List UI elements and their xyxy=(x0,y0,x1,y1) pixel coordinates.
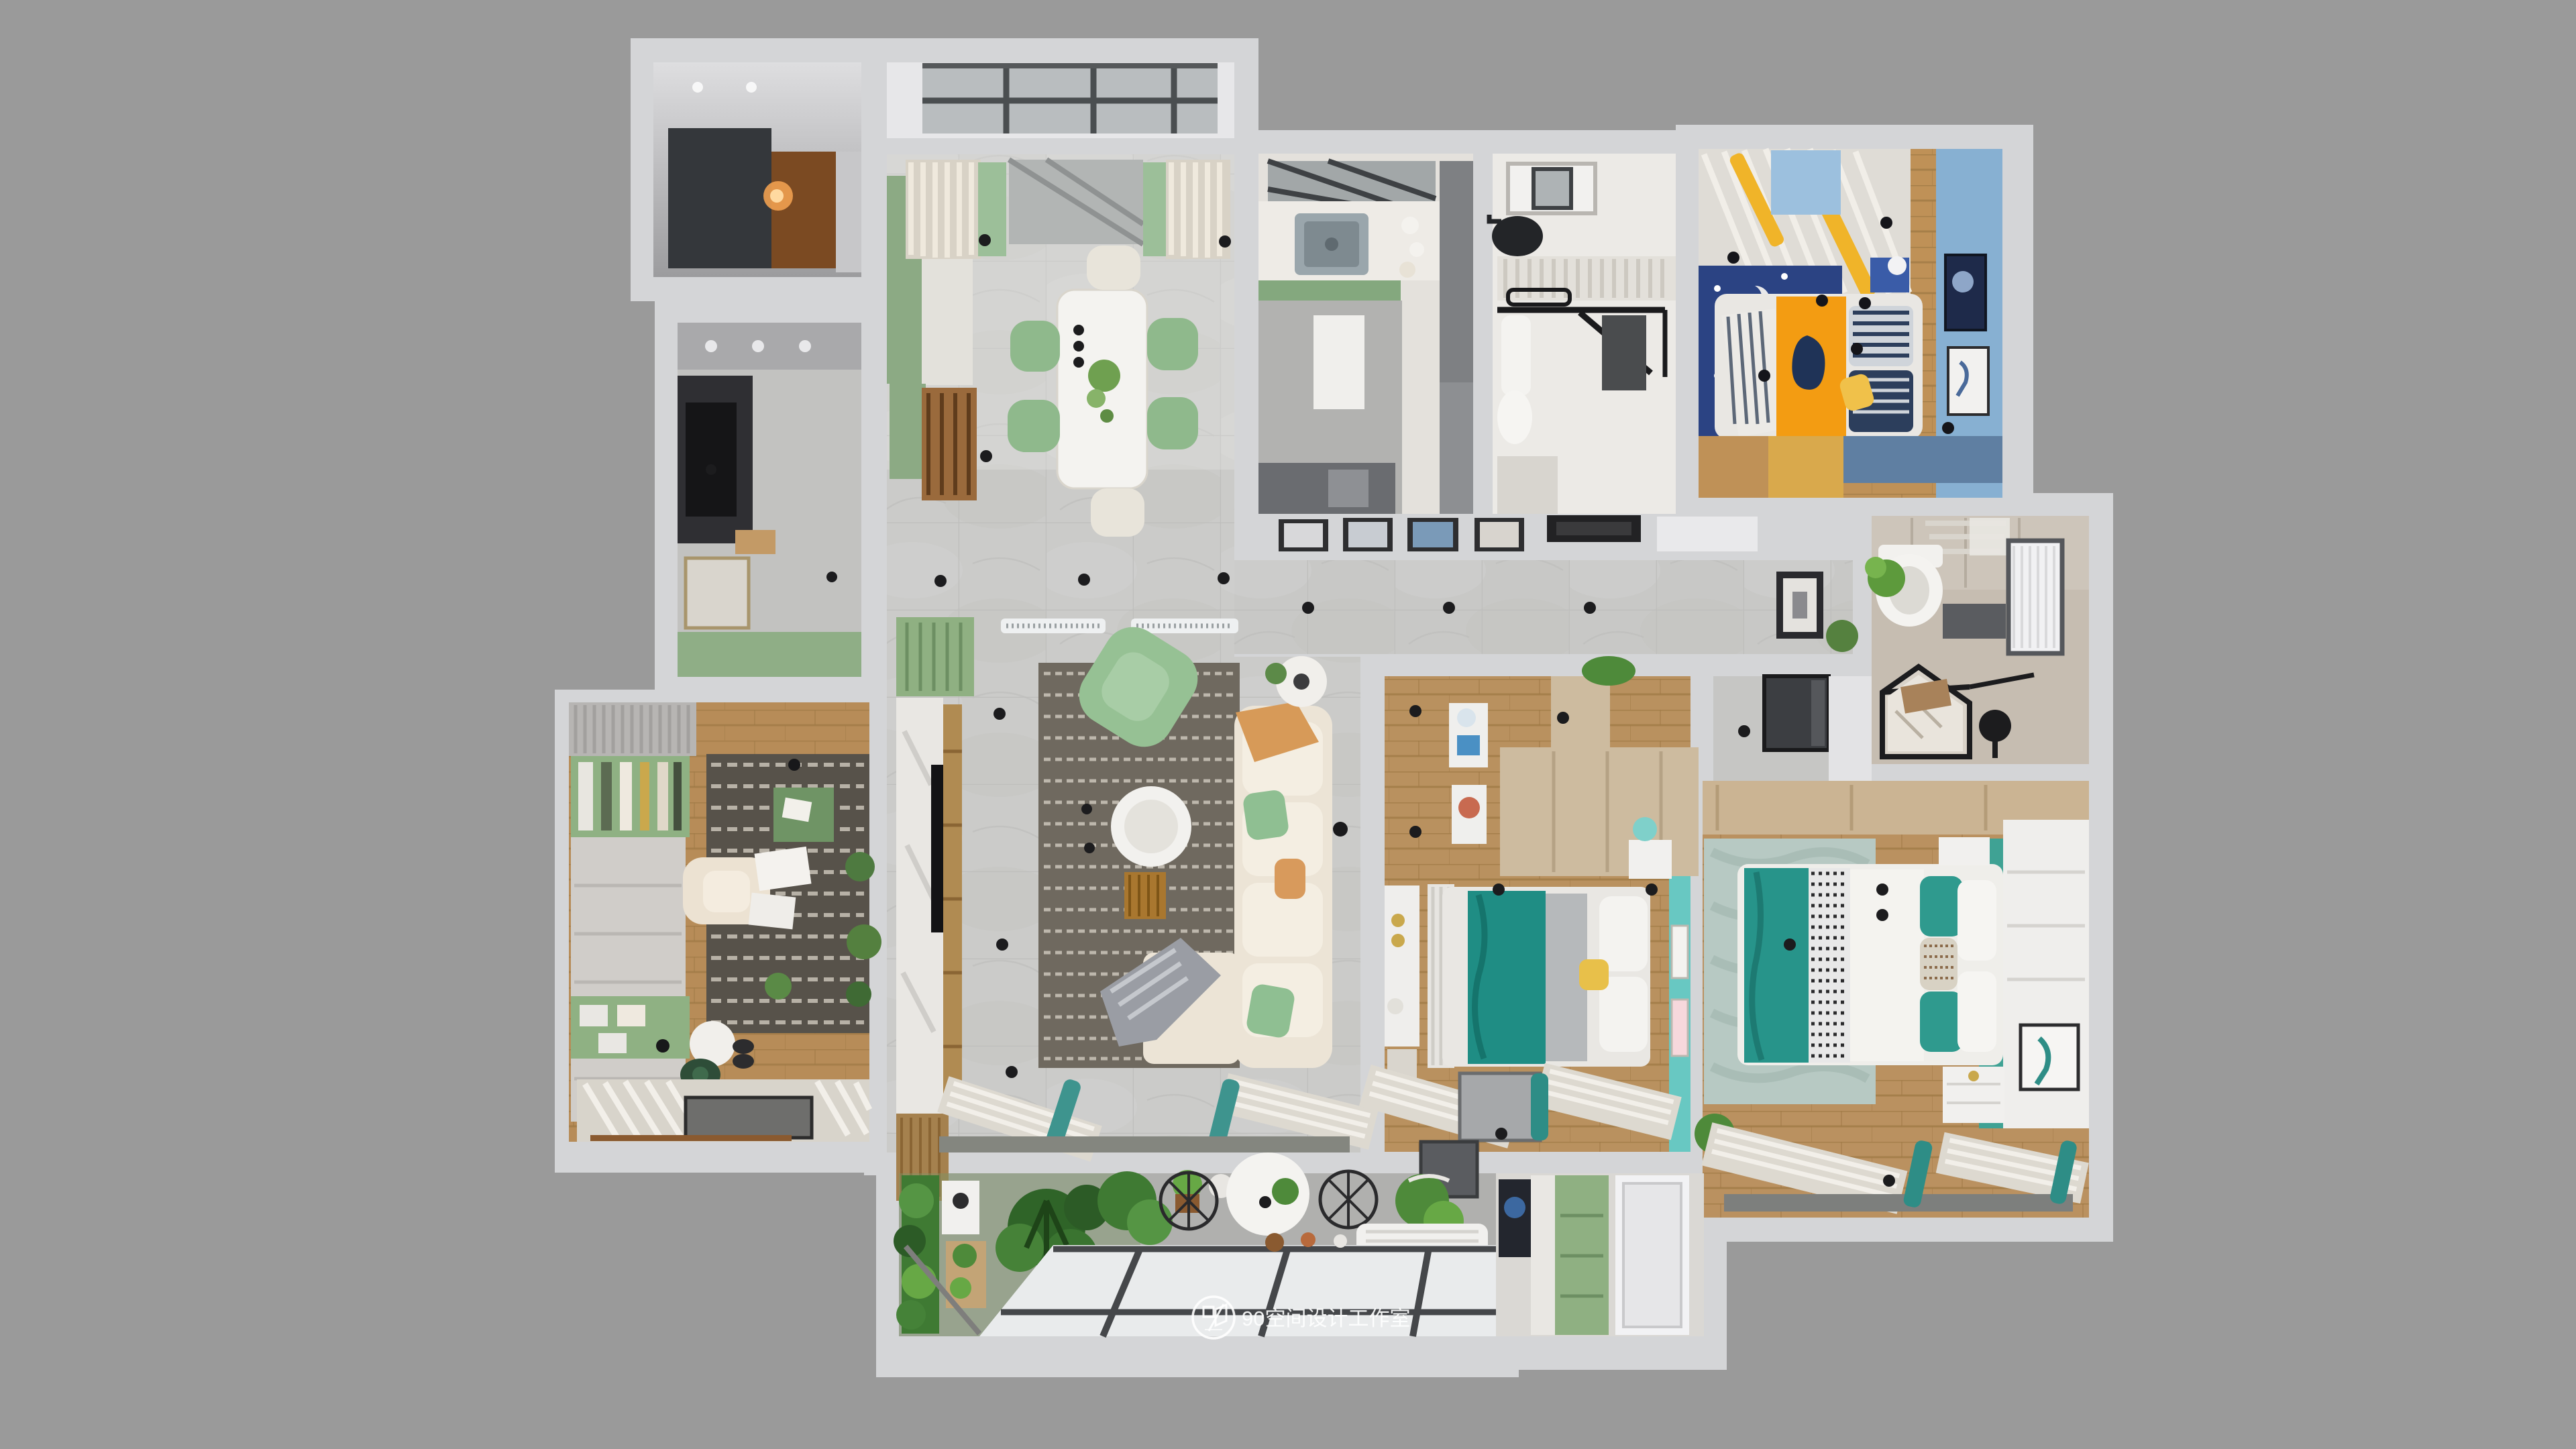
svg-text:90空间设计工作室: 90空间设计工作室 xyxy=(1242,1307,1410,1330)
